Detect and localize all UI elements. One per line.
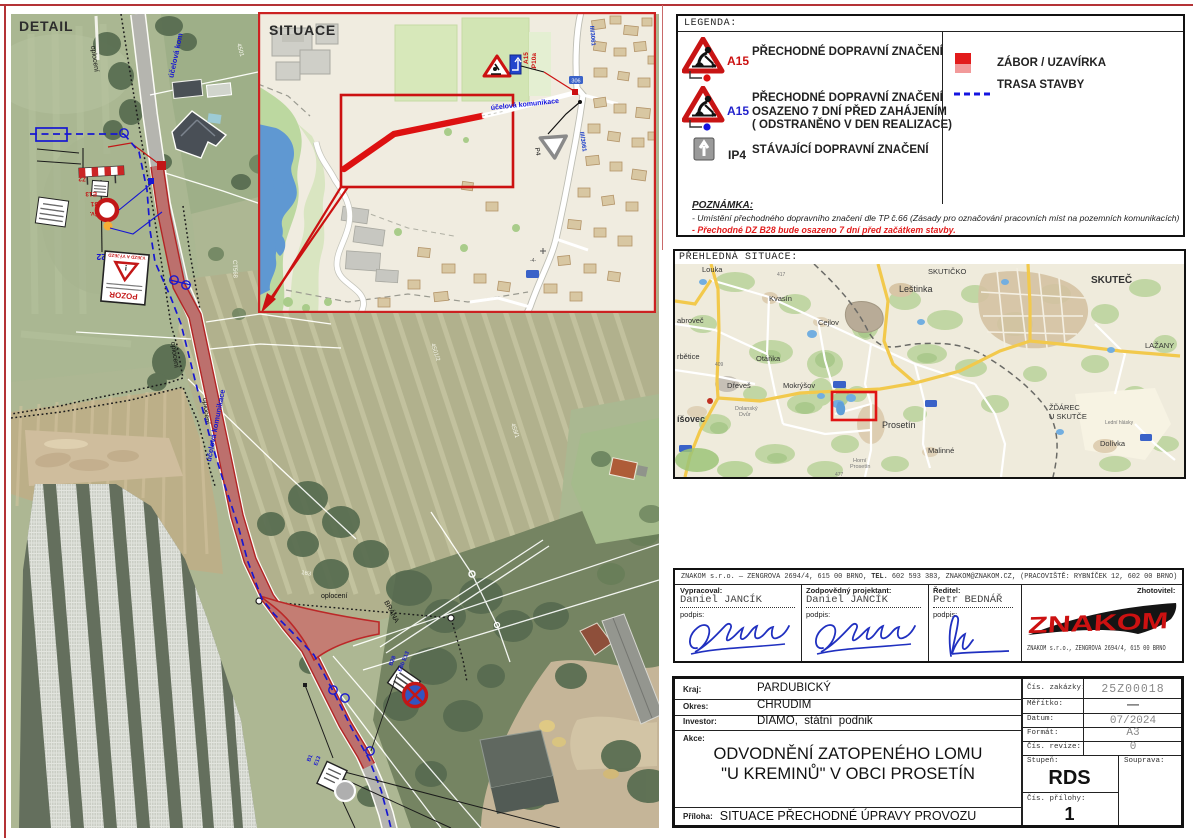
svg-text:íšovec: íšovec (677, 414, 705, 424)
svg-text:Kvasín: Kvasín (769, 294, 792, 303)
svg-text:477: 477 (835, 472, 844, 477)
svg-text:Prosetín: Prosetín (882, 420, 916, 430)
svg-text:Dvůr: Dvůr (739, 411, 751, 418)
svg-text:Z2: Z2 (78, 175, 86, 182)
svg-text:A15: A15 (523, 52, 530, 64)
svg-text:Malinné: Malinné (928, 446, 954, 455)
svg-text:Leštinka: Leštinka (899, 284, 933, 294)
svg-text:IP10a: IP10a (531, 53, 538, 70)
svg-text:Mokrýšov: Mokrýšov (783, 381, 815, 390)
svg-text:SITUACE: SITUACE (269, 22, 336, 38)
svg-text:Prosetín: Prosetín (850, 464, 870, 470)
svg-text:Louka: Louka (702, 265, 723, 274)
svg-text:DETAIL: DETAIL (19, 18, 73, 34)
svg-text:Lední hlásky: Lední hlásky (1105, 420, 1134, 426)
svg-text:Otáňka: Otáňka (756, 354, 781, 363)
svg-text:CT568: CT568 (231, 260, 238, 279)
svg-text:E13: E13 (85, 190, 97, 197)
svg-text:SKUTEČ: SKUTEČ (1091, 273, 1132, 286)
svg-text:SKUTIČKO: SKUTIČKO (928, 267, 967, 276)
svg-text:ZNAKOM: ZNAKOM (1027, 607, 1169, 638)
svg-text:Cejlov: Cejlov (818, 318, 839, 327)
svg-text:-4-: -4- (530, 258, 536, 264)
svg-text:Dolívka: Dolívka (1100, 439, 1126, 448)
svg-text:417: 417 (777, 272, 786, 278)
svg-text:306: 306 (571, 79, 580, 85)
svg-text:P4: P4 (533, 147, 541, 156)
svg-text:Dřeveš: Dřeveš (727, 381, 751, 390)
svg-text:oplocení: oplocení (321, 593, 348, 600)
svg-text:rbětice: rbětice (677, 352, 700, 361)
svg-text:ŽĎÁREC: ŽĎÁREC (1049, 403, 1080, 412)
svg-text:abroveč: abroveč (677, 316, 704, 325)
svg-text:U SKUTČE: U SKUTČE (1049, 412, 1087, 421)
svg-text:409: 409 (715, 362, 724, 368)
svg-text:LAŽANY: LAŽANY (1145, 341, 1174, 350)
